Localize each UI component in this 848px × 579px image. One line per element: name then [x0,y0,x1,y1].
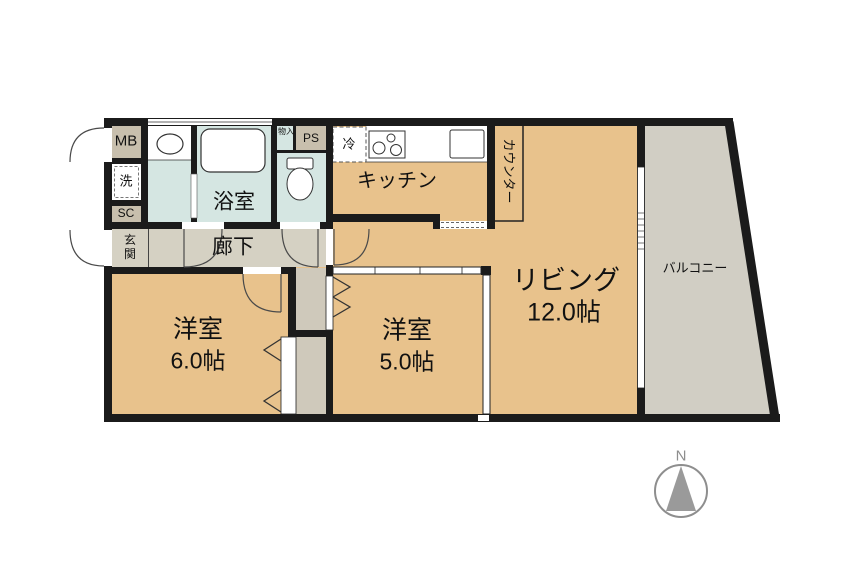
hallway-label: 廊下 [212,237,254,258]
wall-kitchen-bottom [326,214,440,222]
kitchen-label: キッチン [357,171,437,191]
stove-burner [373,142,385,154]
closet-lower-area [296,337,326,414]
wall-bedroom6-top [104,267,243,274]
wall-ps-toilet [277,150,326,153]
bedroom5-label: 洋室 [382,319,432,344]
partition-bedroom5-top [333,267,481,274]
toilet-icon [287,168,313,200]
partition-bottom-gap [478,415,489,421]
shoe-closet-label: SC [118,207,135,219]
closet-lower-folding-door [281,337,296,414]
meter-box-door-arc [70,128,104,162]
laundry-label: 洗 [119,175,132,188]
entrance-door-arc [70,230,104,266]
toilet-tank-icon [287,158,313,169]
wall-bottom [104,414,780,422]
wall-bath-toilet [271,126,277,222]
wall-utility-column [141,126,148,222]
living-label: リビング [512,268,620,295]
refrigerator-label: 冷 [342,138,355,151]
bedroom5-size-label: 5.0帖 [380,351,435,374]
wall-closet-left [288,268,296,337]
living-size-label: 12.0帖 [527,301,601,326]
closet-upper-area [296,268,326,330]
counter-label: カウンター [503,138,516,203]
balcony-label: バルコニー [663,262,728,275]
wall-closet-joint [326,268,333,276]
wall-partition-joint [481,266,491,275]
balcony-window [638,167,645,388]
bathroom-door [191,174,197,218]
wall-toilet-kitchen [326,118,333,222]
bedroom6-size-label: 6.0帖 [171,350,226,373]
floor-plan-canvas [0,0,848,579]
meter-box-door-opening [104,128,112,162]
stove-burner [391,145,402,156]
compass-icon [655,465,707,517]
meter-box-label: MB [115,134,138,149]
partition-bedroom5-right [483,275,490,414]
wall-kitchen-right [487,118,495,229]
wall-mb-laundry [112,158,148,164]
floor-plan-page: MB 洗 SC 玄関 浴室 物入 PS 冷 キッチン カウンター 廊下 リビング… [0,0,848,579]
bedroom6-door-opening [243,267,281,274]
entrance-door-opening [104,230,112,266]
wall-closet-right [326,337,333,414]
stove-burner [387,134,395,142]
wall-closet-divider [288,330,333,337]
pipe-space-label: PS [303,132,319,144]
bathtub-icon [201,129,265,172]
wall-kitchen-stub [433,214,440,229]
bedroom6-label: 洋室 [173,318,223,343]
washroom-door-opening [182,222,224,229]
kitchen-sink-icon [450,130,484,158]
storage-label: 物入 [278,128,294,136]
bathroom-label: 浴室 [213,192,255,213]
washbasin-sink-icon [157,134,183,154]
toilet-door-opening [280,222,320,229]
hall-living-door-opening [326,229,333,265]
closet-upper-folding-door [326,276,333,330]
entrance-label: 玄関 [123,234,137,262]
compass-north-label: N [676,449,687,464]
